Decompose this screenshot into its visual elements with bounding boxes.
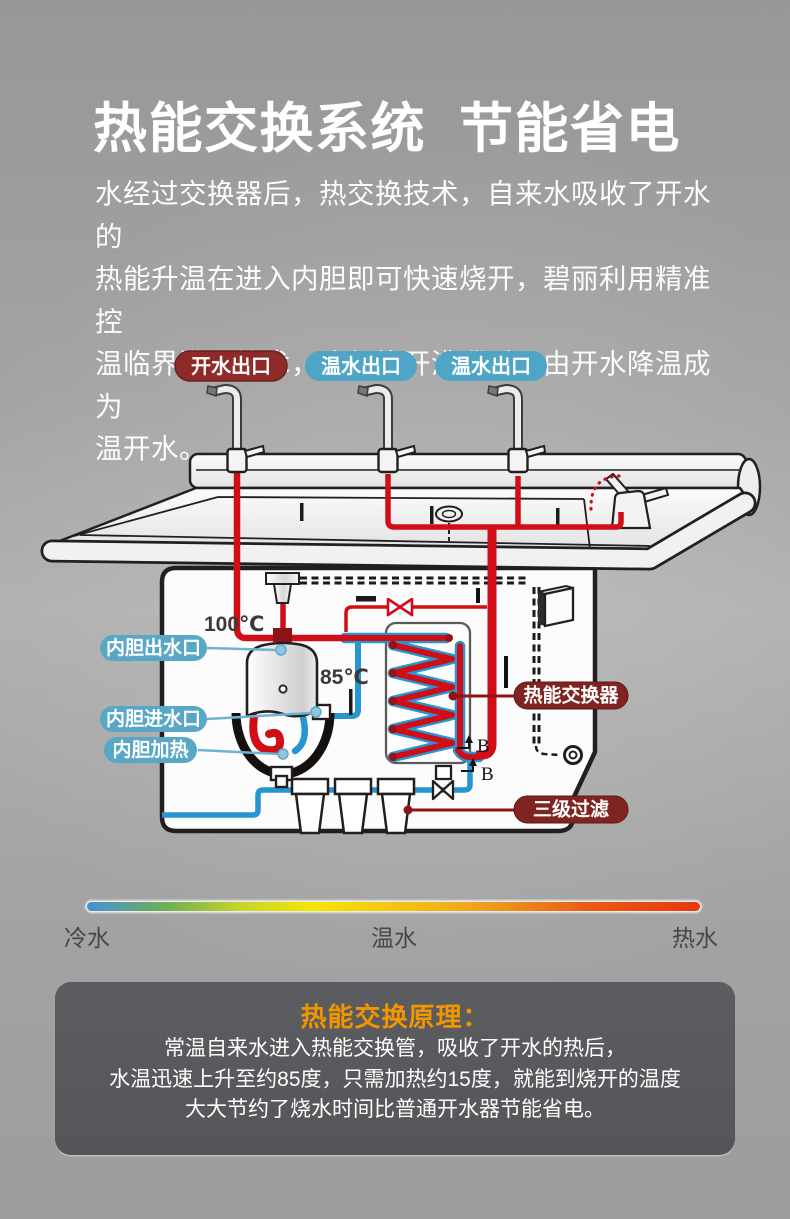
label-text: 三级过滤 [533, 798, 609, 821]
outlet-label-text: 开水出口 [191, 355, 271, 378]
b-mark-text: B [477, 736, 490, 757]
b-mark-text: B [481, 764, 494, 785]
outlet-label-boiling: 开水出口 [175, 351, 287, 381]
control-panel-icon [538, 586, 573, 626]
outlet-label-warm-2: 温水出口 [435, 351, 547, 381]
cord-grommet-icon [565, 747, 582, 764]
thermometer-mark [349, 689, 353, 715]
label-tank-heating: 内胆加热 [104, 737, 197, 763]
label-text: 内胆加热 [112, 738, 188, 761]
principle-box: 热能交换原理： 常温自来水进入热能交换管，吸收了开水的热后， 水温迅速上升至约8… [55, 982, 735, 1155]
leader-dot [449, 692, 458, 701]
label-tank-inlet: 内胆进水口 [100, 706, 207, 732]
scale-label-hot: 热水 [672, 919, 718, 953]
minus-mark [356, 596, 376, 602]
temperature-gradient-bar [87, 902, 700, 911]
tick-mark [504, 656, 508, 688]
principle-line: 大大节约了烧水时间比普通开水器节能省电。 [55, 1095, 735, 1126]
sink-counter [57, 454, 760, 551]
principle-line: 水温迅速上升至约85度，只需加热约15度，就能到烧开的温度 [55, 1065, 735, 1096]
intro-line: 热能升温在进入内胆即可快速烧开，碧丽利用精准控 [95, 258, 715, 343]
scale-label-cold: 冷水 [64, 919, 110, 953]
label-three-stage-filter: 三级过滤 [514, 796, 628, 823]
outlet-label-warm-1: 温水出口 [305, 351, 417, 381]
label-text: 热能交换器 [523, 684, 619, 707]
label-text: 内胆进水口 [106, 707, 201, 730]
tick-mark [476, 588, 480, 603]
outlet-label-text: 温水出口 [451, 354, 531, 378]
system-diagram: 开水出口 温水出口 温水出口 内胆出水口 内胆进水口 内胆加热 热能交换器 [0, 340, 790, 900]
principle-line: 常温自来水进入热能交换管，吸收了开水的热后， [55, 1034, 735, 1065]
connection-dot [278, 749, 288, 759]
leader-dot [404, 806, 413, 815]
principle-title: 热能交换原理： [55, 997, 735, 1034]
scale-label-warm: 温水 [371, 919, 417, 953]
intro-line: 水经过交换器后，热交换技术，自来水吸收了开水的 [95, 173, 715, 258]
product-infographic-page: 热能交换系统 节能省电 水经过交换器后，热交换技术，自来水吸收了开水的 热能升温… [0, 0, 790, 1219]
temp-85-label: 85℃ [320, 666, 369, 689]
connection-dot [276, 645, 286, 655]
temp-100-label: 100℃ [204, 613, 264, 636]
drain-icon [436, 507, 462, 522]
label-heat-exchanger: 热能交换器 [514, 682, 628, 709]
label-tank-outlet: 内胆出水口 [100, 635, 207, 661]
page-title: 热能交换系统 节能省电 [93, 84, 743, 163]
label-text: 内胆出水口 [106, 636, 201, 659]
connection-dot [311, 707, 321, 717]
outlet-label-text: 温水出口 [321, 354, 401, 378]
